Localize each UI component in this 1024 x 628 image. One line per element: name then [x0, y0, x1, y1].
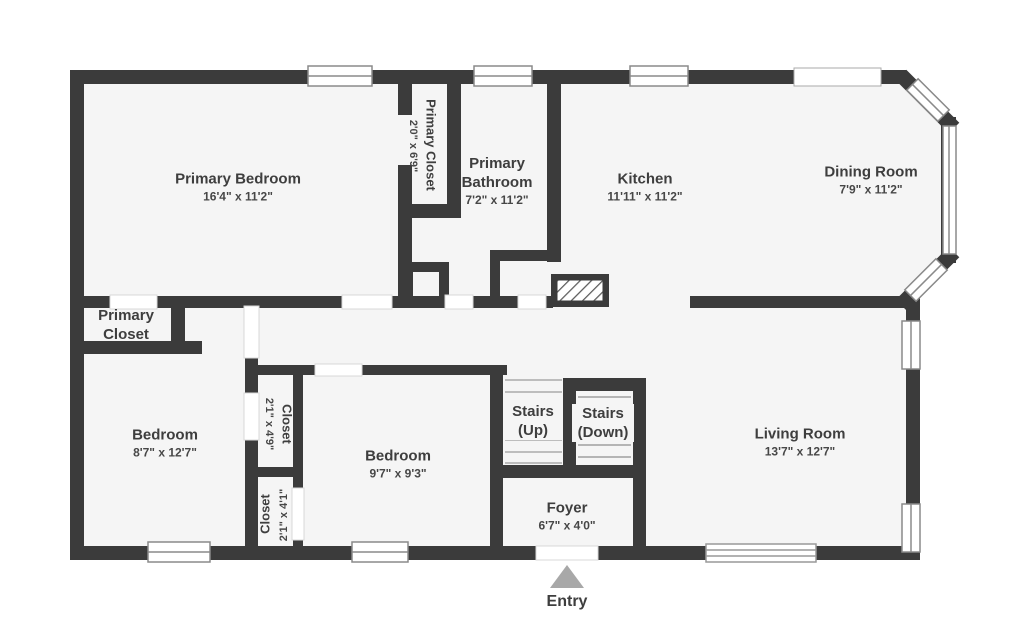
room-name: Primary Bedroom: [175, 170, 301, 189]
room-label-primary-bedroom: Primary Bedroom 16'4" x 11'2": [175, 170, 301, 205]
room-dims: 9'7" x 9'3": [365, 466, 431, 482]
entry-door-opening: [536, 546, 598, 560]
room-label-closet-lower: Closet: [258, 494, 273, 534]
room-label-dining-room: Dining Room 7'9" x 11'2": [824, 163, 917, 198]
room-label-bedroom-middle: Bedroom 9'7" x 9'3": [365, 447, 431, 482]
room-name: Bedroom: [132, 426, 198, 445]
room-dims-closet-lower: 2'1" x 4'1": [278, 489, 290, 541]
room-dims: 7'2" x 11'2": [449, 192, 545, 208]
room-dims-primary-closet-top: 2'0" x 6'9": [407, 120, 419, 172]
room-label-primary-closet-top: Primary Closet: [424, 99, 439, 191]
room-dims-closet-upper: 2'1" x 4'9": [263, 398, 275, 450]
entry-label: Entry: [547, 593, 588, 611]
floorplan-page: Primary Bedroom 16'4" x 11'2" Primary Cl…: [0, 0, 1024, 628]
room-dims: 11'11" x 11'2": [607, 189, 682, 205]
room-label-living-room: Living Room 13'7" x 12'7": [755, 425, 846, 460]
room-name: Dining Room: [824, 163, 917, 182]
chimney: [551, 274, 609, 307]
room-dims: 7'9" x 11'2": [824, 182, 917, 198]
room-label-kitchen: Kitchen 11'11" x 11'2": [607, 170, 682, 205]
room-name: Living Room: [755, 425, 846, 444]
room-name: Primary Closet: [86, 306, 166, 344]
room-name: Foyer: [538, 499, 595, 518]
room-dims: 16'4" x 11'2": [175, 189, 301, 205]
room-name: Primary Bathroom: [449, 154, 545, 192]
room-label-primary-bathroom: Primary Bathroom 7'2" x 11'2": [449, 154, 545, 208]
room-dims: 13'7" x 12'7": [755, 444, 846, 460]
room-label-bedroom-left: Bedroom 8'7" x 12'7": [132, 426, 198, 461]
room-label-stairs-down: Stairs (Down): [572, 404, 634, 442]
room-label-closet-upper: Closet: [280, 404, 295, 444]
room-dims: 8'7" x 12'7": [132, 445, 198, 461]
room-name: Stairs (Up): [504, 402, 562, 440]
room-name: Bedroom: [365, 447, 431, 466]
room-name: Kitchen: [607, 170, 682, 189]
room-name: Stairs (Down): [572, 404, 634, 442]
floor-area: [70, 70, 956, 560]
entry-arrow-icon: [550, 565, 584, 588]
room-label-primary-closet-left: Primary Closet: [86, 306, 166, 344]
room-dims: 6'7" x 4'0": [538, 518, 595, 534]
room-label-stairs-up: Stairs (Up): [504, 402, 562, 440]
room-label-foyer: Foyer 6'7" x 4'0": [538, 499, 595, 534]
